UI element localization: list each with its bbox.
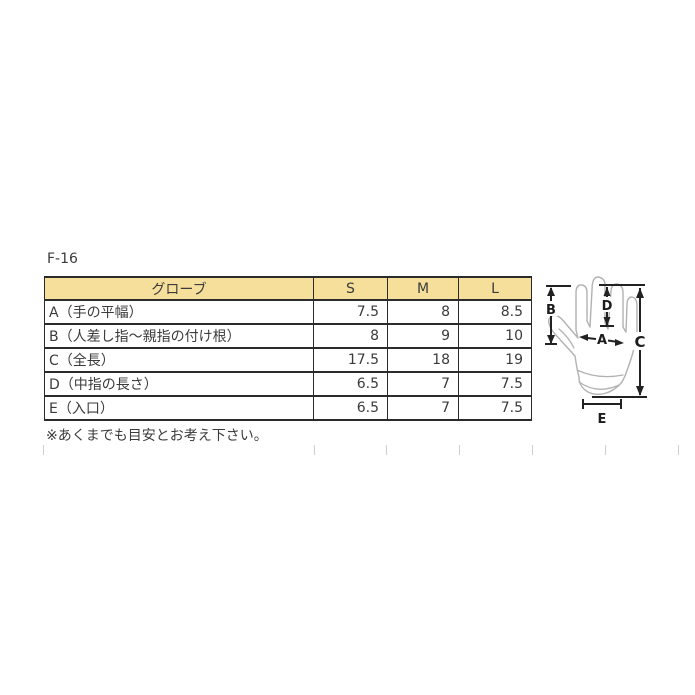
diagram-label-a: A <box>597 333 607 348</box>
diagram-label-e: E <box>598 412 607 427</box>
diagram-label-c: C <box>634 333 645 351</box>
measure-e-arrow: E <box>583 399 621 427</box>
glove-illustration <box>549 277 637 394</box>
glove-measurement-diagram: B D C A <box>0 0 695 695</box>
diagram-label-d: D <box>602 299 613 314</box>
size-chart-page: F-16 グローブ S M L A（手の平幅） 7.5 8 8.5 B（人差し指… <box>0 0 695 695</box>
diagram-label-b: B <box>546 303 556 318</box>
glove-outline <box>549 277 637 394</box>
